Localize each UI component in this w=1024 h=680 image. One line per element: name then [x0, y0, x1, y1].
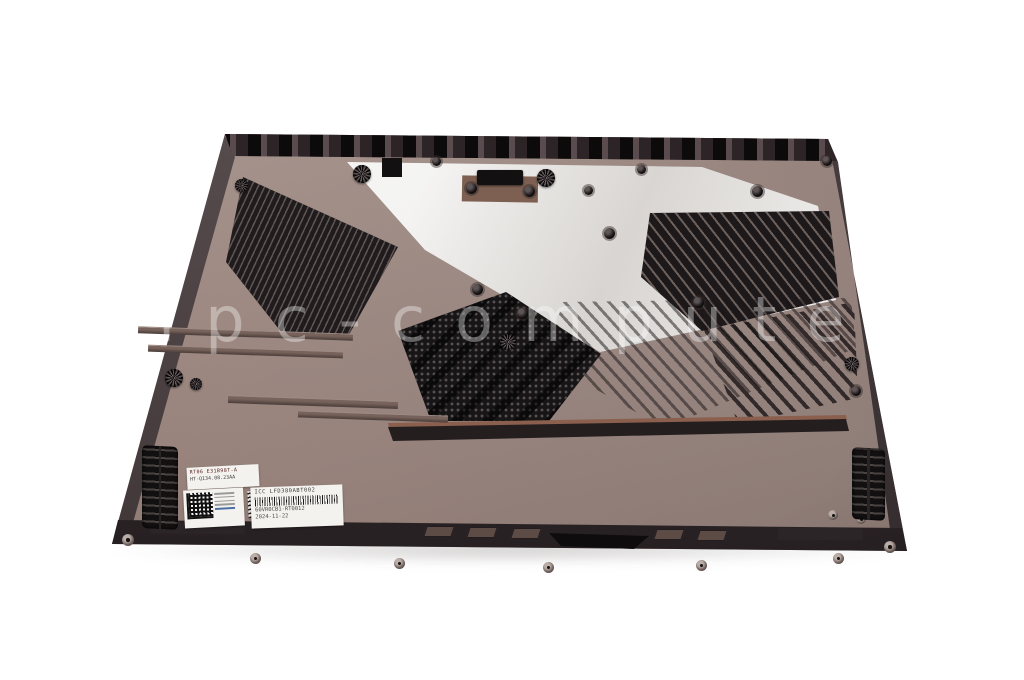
screw-boss — [250, 553, 261, 564]
screw — [584, 186, 593, 195]
product-photo: RT06 E31B98T-A HT-Q134.08.23AA ICC LFD38… — [0, 0, 1024, 680]
screw — [604, 228, 615, 239]
standoff-post — [165, 369, 183, 387]
molded-tab — [510, 528, 542, 539]
watermark: ipc-computer — [158, 283, 930, 356]
molded-recess — [778, 528, 863, 541]
standoff-post — [235, 179, 248, 192]
qr-code-icon — [186, 492, 213, 519]
screw — [524, 186, 535, 197]
standoff-post — [190, 378, 202, 390]
molded-tab — [423, 526, 455, 537]
screw — [851, 386, 861, 396]
screw-boss — [543, 562, 554, 573]
screw — [822, 156, 832, 166]
screw-boss — [696, 560, 707, 571]
screw — [637, 165, 646, 174]
standoff-post — [845, 357, 859, 371]
mini-label-sticker: RT06 E31B98T-A HT-Q134.08.23AA — [186, 464, 259, 490]
screw — [432, 157, 441, 166]
screw-boss — [828, 510, 838, 520]
service-date: 2024-11-22 — [255, 512, 339, 522]
molded-tab — [466, 527, 498, 538]
screw-boss — [884, 541, 896, 553]
speaker-rib — [159, 446, 162, 529]
molded-tab — [653, 529, 685, 540]
rubber-block — [382, 158, 402, 177]
screw-boss — [394, 558, 405, 569]
molded-tab — [696, 530, 728, 541]
docking-connector — [477, 170, 523, 185]
speaker-grille-left — [142, 445, 178, 530]
screw — [466, 183, 477, 194]
qr-sticker — [183, 487, 245, 528]
qr-sticker-textlines — [214, 492, 235, 512]
speaker-rib — [867, 448, 870, 520]
speaker-grille-right — [852, 447, 885, 521]
standoff-post — [353, 165, 371, 183]
standoff-post — [537, 169, 555, 187]
screw-boss — [833, 553, 844, 564]
service-barcode-sticker: ICC LFD380ABT002 60VR0CB1-RT0012 2024-11… — [250, 484, 343, 528]
screw — [752, 186, 763, 197]
screw-boss — [122, 534, 134, 546]
